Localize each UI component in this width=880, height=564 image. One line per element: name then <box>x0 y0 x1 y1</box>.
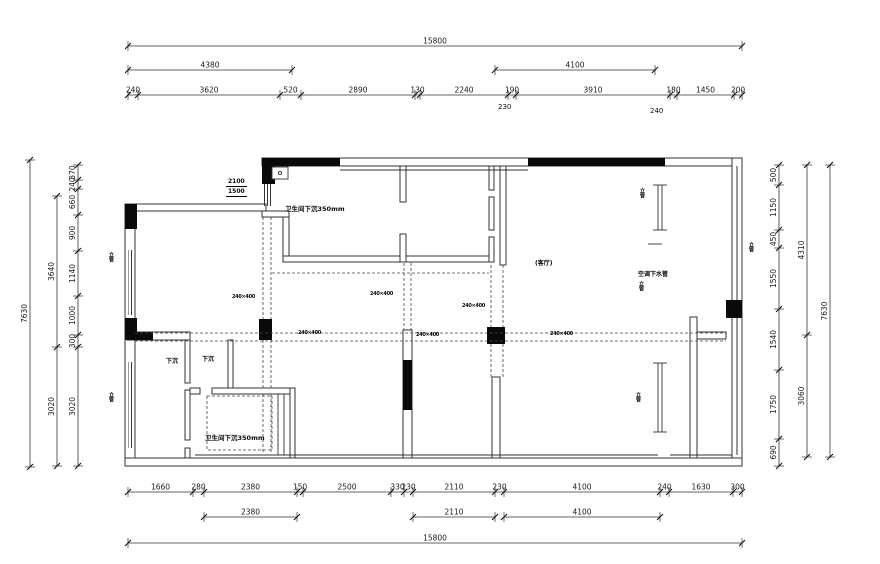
dim-label: 1140 <box>68 264 77 283</box>
dim-label: 3640 <box>47 262 56 281</box>
dim-label: 3060 <box>797 386 806 405</box>
dim-label: 4100 <box>572 483 591 492</box>
dim-label: 280 <box>191 483 206 492</box>
dim-label: 3020 <box>47 397 56 416</box>
beam-size-tag: 240×400 <box>298 330 321 336</box>
dim-label: 450 <box>769 232 778 247</box>
dim-label: 1150 <box>769 198 778 217</box>
dim-label: 2240 <box>454 86 473 95</box>
dim-label: 4380 <box>200 61 219 70</box>
riser-tag: 立管 <box>635 392 642 402</box>
dim-label: 240 <box>657 483 672 492</box>
dim-label: 2500 <box>337 483 356 492</box>
dim-label: 1630 <box>691 483 710 492</box>
window-tag-height: 1500 <box>226 187 247 197</box>
dim-label: 150 <box>293 483 308 492</box>
dim-label: 2380 <box>241 508 260 517</box>
riser-tag: 立管 <box>639 188 646 198</box>
dim-label: 200 <box>731 86 746 95</box>
riser-tag: 立管 <box>108 392 115 402</box>
dim-label: 3620 <box>199 86 218 95</box>
dim-label: 15800 <box>423 534 447 543</box>
window-tag-width: 2100 <box>226 177 247 187</box>
dim-label: 230 <box>492 483 507 492</box>
dim-label: 4100 <box>572 508 591 517</box>
dim-label: 300 <box>68 334 77 349</box>
dim-label: 2380 <box>241 483 260 492</box>
dim-label: 1000 <box>68 306 77 325</box>
dim-label: 660 <box>68 195 77 210</box>
dim-label: 7630 <box>820 301 829 320</box>
dim-label: 300 <box>730 483 745 492</box>
dim-label: 240 <box>126 86 141 95</box>
bath-top-label: 卫生间下沉350mm <box>285 203 345 213</box>
dim-label: 2110 <box>444 483 463 492</box>
dim-label: 1550 <box>769 269 778 288</box>
dim-label: 690 <box>769 445 778 460</box>
dim-label: 1660 <box>151 483 170 492</box>
riser-tag: 立管 <box>748 242 755 252</box>
floor-plan-page: 1580043804100240362052028901302240190391… <box>0 0 880 564</box>
sunken-label-a: 下沉 <box>166 356 178 365</box>
riser-tag: 立管 <box>638 281 645 291</box>
dim-label: 15800 <box>423 37 447 46</box>
dim-label: 2890 <box>348 86 367 95</box>
dim-label: 900 <box>68 226 77 241</box>
beam-size-tag: 240×400 <box>462 303 485 309</box>
dim-label: 4310 <box>797 240 806 259</box>
dim-label: 3910 <box>583 86 602 95</box>
dim-label: 230 <box>401 483 416 492</box>
dim-label: 1450 <box>696 86 715 95</box>
beam-size-tag: 240×400 <box>550 331 573 337</box>
dim-label: 180 <box>666 86 681 95</box>
dim-label: 240 <box>68 177 77 192</box>
dim-label: 3020 <box>68 397 77 416</box>
dim-label: 520 <box>283 86 298 95</box>
bath-bottom-label: 卫生间下沉350mm <box>205 432 265 442</box>
dim-label: 130 <box>410 86 425 95</box>
small-fixture-box <box>272 167 288 179</box>
ac-drain-label: 空调下水管 <box>638 269 668 278</box>
dim-label: 1750 <box>769 395 778 414</box>
floor-plan-canvas: 1580043804100240362052028901302240190391… <box>0 0 880 564</box>
dim-label: 500 <box>769 168 778 183</box>
living-room-label: (客厅) <box>535 258 553 267</box>
window-tag: 2100 1500 <box>226 177 247 197</box>
dim-label: 7630 <box>20 304 29 323</box>
riser-tag: 立管 <box>108 252 115 262</box>
sunken-label-b: 下沉 <box>202 354 214 363</box>
dim-label: 190 <box>505 86 520 95</box>
beam-size-tag: 240×400 <box>370 291 393 297</box>
dim-label: 4100 <box>565 61 584 70</box>
top-sub-dim: 230 <box>498 103 511 111</box>
top-sub-dim: 240 <box>650 107 663 115</box>
dim-label: 1540 <box>769 330 778 349</box>
dim-label: 2110 <box>444 508 463 517</box>
beam-size-tag: 240×400 <box>232 294 255 300</box>
beam-size-tag: 240×400 <box>416 332 439 338</box>
